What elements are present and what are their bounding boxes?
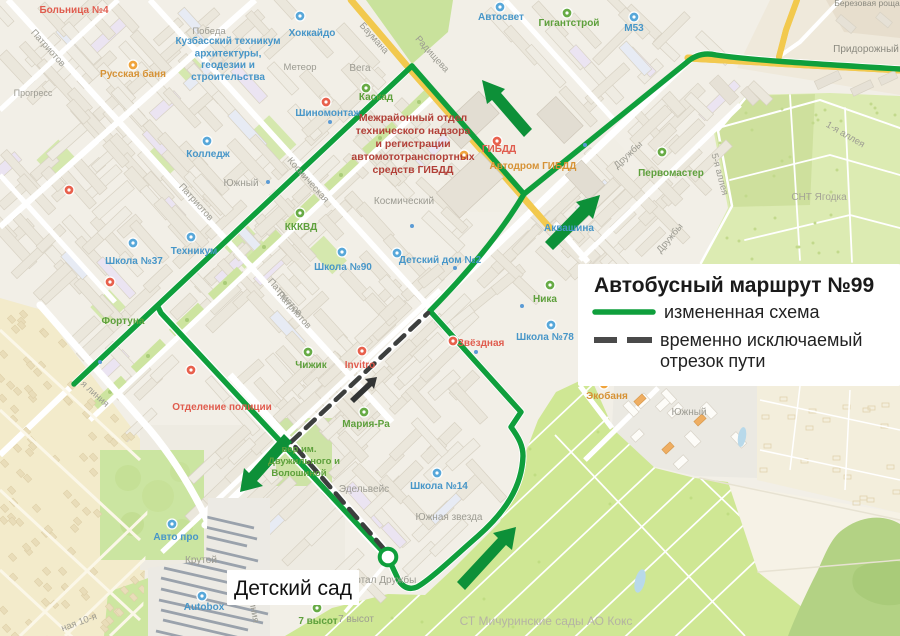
svg-text:Аквашина: Аквашина [544, 223, 594, 234]
svg-text:Школа №90: Школа №90 [314, 262, 372, 273]
svg-text:Вега: Вега [349, 63, 371, 74]
svg-text:СНТ Ягодка: СНТ Ягодка [791, 192, 847, 203]
svg-text:Космический: Космический [374, 196, 434, 207]
svg-text:СТ Мичуринские сады АО Кокс: СТ Мичуринские сады АО Кокс [460, 614, 633, 628]
svg-text:Чижик: Чижик [295, 360, 327, 371]
svg-text:архитектуры,: архитектуры, [195, 49, 262, 60]
svg-text:7 высот: 7 высот [298, 616, 337, 627]
svg-text:Березовая роща: Березовая роща [834, 0, 900, 8]
svg-text:автомототранспортных: автомототранспортных [351, 151, 474, 163]
svg-text:Русская баня: Русская баня [100, 68, 166, 80]
svg-text:ГИБДД: ГИБДД [482, 144, 516, 155]
svg-text:Отделение полиции: Отделение полиции [172, 402, 272, 413]
svg-text:Экобаня: Экобаня [586, 390, 628, 402]
svg-text:ортал Дружбы: ортал Дружбы [350, 574, 417, 586]
svg-text:Детский дом №2: Детский дом №2 [399, 255, 482, 266]
svg-text:вер им.: вер им. [282, 444, 317, 455]
svg-text:Школа №37: Школа №37 [105, 256, 163, 267]
svg-text:Больница №4: Больница №4 [39, 5, 108, 16]
svg-text:М53: М53 [624, 23, 644, 34]
svg-text:геодезии и: геодезии и [201, 60, 255, 71]
svg-text:Шиномонтаж: Шиномонтаж [295, 108, 361, 119]
svg-text:Кузбасский техникум: Кузбасский техникум [175, 35, 280, 47]
svg-text:измененная схема: измененная схема [664, 302, 820, 322]
svg-text:Ника: Ника [533, 294, 557, 305]
svg-text:Метеор: Метеор [283, 62, 316, 73]
svg-text:технического надзора: технического надзора [356, 125, 471, 137]
svg-text:Южный: Южный [223, 178, 258, 189]
svg-text:Авто про: Авто про [153, 532, 198, 543]
svg-text:Каскад: Каскад [359, 92, 394, 103]
svg-text:Первомастер: Первомастер [638, 168, 704, 179]
svg-text:7 высот: 7 высот [338, 614, 374, 625]
svg-text:Прогресс: Прогресс [14, 88, 53, 98]
svg-text:Южный: Южный [671, 407, 706, 418]
svg-text:Волошиной: Волошиной [271, 468, 326, 479]
svg-text:Колледж: Колледж [186, 149, 230, 160]
svg-text:Autobox: Autobox [184, 602, 225, 613]
svg-text:отрезок пути: отрезок пути [660, 351, 765, 371]
svg-text:Автодром ГИБДД: Автодром ГИБДД [490, 161, 577, 172]
svg-text:средств ГИБДД: средств ГИБДД [373, 164, 455, 176]
svg-text:Межрайонный отдел: Межрайонный отдел [359, 112, 467, 124]
svg-text:и регистрации: и регистрации [375, 138, 450, 150]
svg-text:Школа №78: Школа №78 [516, 332, 574, 343]
svg-text:временно исключаемый: временно исключаемый [660, 330, 862, 350]
svg-text:Техникум: Техникум [171, 246, 218, 257]
svg-text:Двужильного и: Двужильного и [268, 456, 340, 467]
svg-text:Южная звезда: Южная звезда [416, 512, 483, 523]
svg-text:Крутой: Крутой [185, 555, 217, 566]
svg-text:Придорожный: Придорожный [833, 44, 899, 55]
svg-text:Мария-Ра: Мария-Ра [342, 419, 390, 430]
svg-text:строительства: строительства [191, 72, 265, 83]
svg-text:Школа №14: Школа №14 [410, 481, 468, 492]
svg-text:КККВД: КККВД [285, 222, 318, 233]
svg-text:Invitro: Invitro [345, 360, 376, 371]
svg-text:Эдельвейс: Эдельвейс [339, 484, 389, 495]
svg-text:Фортуна: Фортуна [102, 316, 145, 327]
svg-text:Автобусный маршрут №99: Автобусный маршрут №99 [594, 274, 874, 297]
svg-text:Гигантстрой: Гигантстрой [539, 18, 600, 29]
svg-text:Звёздная: Звёздная [458, 338, 505, 349]
svg-text:Автосвет: Автосвет [478, 12, 524, 23]
svg-text:Детский сад: Детский сад [234, 577, 352, 600]
svg-text:Хоккайдо: Хоккайдо [289, 28, 336, 39]
